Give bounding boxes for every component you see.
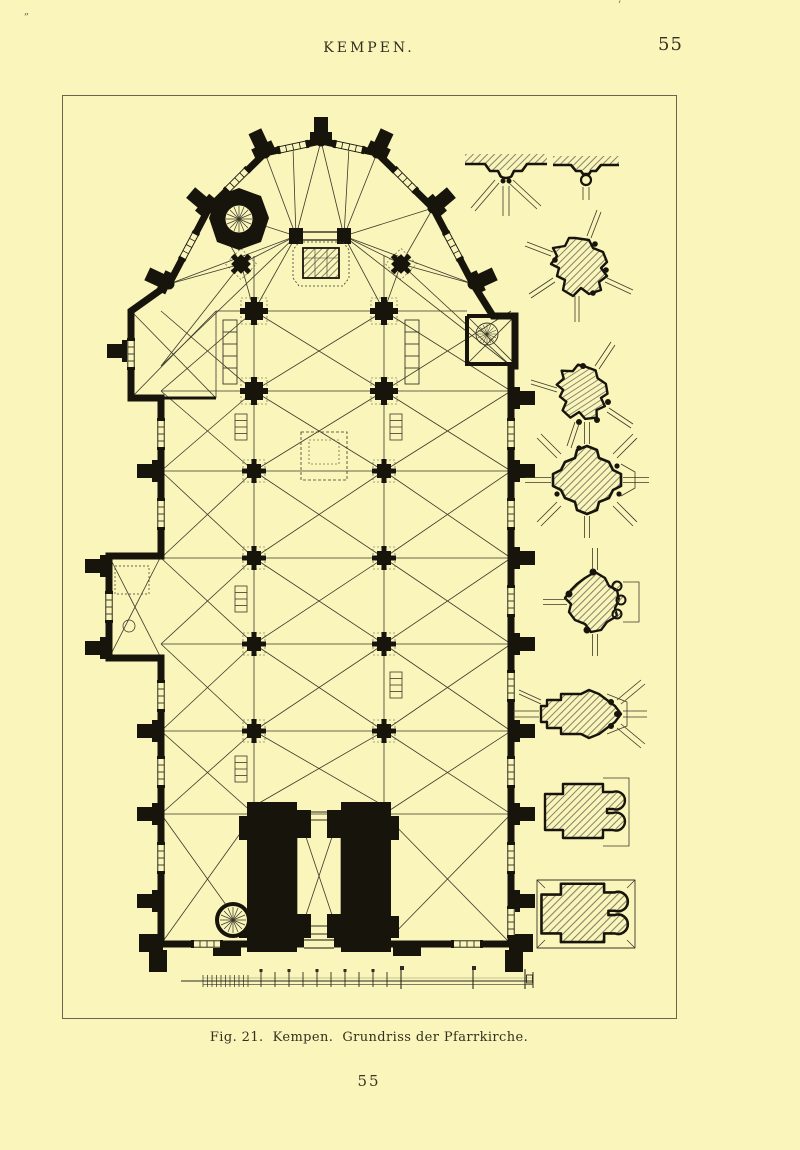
- piers: [224, 228, 418, 743]
- figure-caption: Fig. 21. Kempen. Grundriss der Pfarrkirc…: [0, 1030, 738, 1045]
- choir-pier-section: [525, 210, 633, 322]
- church-floor-plan: [85, 117, 535, 972]
- scale-bar: [181, 966, 533, 989]
- tower-pier-section-upper: [545, 778, 629, 846]
- furnishings: [115, 242, 498, 782]
- wall-respond-profile-left: [465, 154, 547, 216]
- nave-furniture-outline: [301, 432, 347, 480]
- running-title: KEMPEN.: [0, 40, 738, 56]
- scan-mark-top-right: ’: [618, 0, 621, 11]
- page-number-bottom: 55: [0, 1072, 738, 1090]
- nave-pier-section: [543, 548, 639, 656]
- apse-pier-section: [531, 342, 633, 448]
- figure-21-drawing: [63, 96, 676, 1018]
- figure-frame: [62, 95, 677, 1019]
- wall-respond-profile-right: [553, 156, 619, 200]
- scan-mark-top-left: „: [24, 6, 29, 17]
- tower-pier-section-lower: [537, 880, 635, 948]
- high-altar: [303, 248, 339, 278]
- crossing-pier-section: [525, 422, 649, 538]
- page-number-top: 55: [658, 34, 683, 55]
- buttresses: [85, 117, 535, 972]
